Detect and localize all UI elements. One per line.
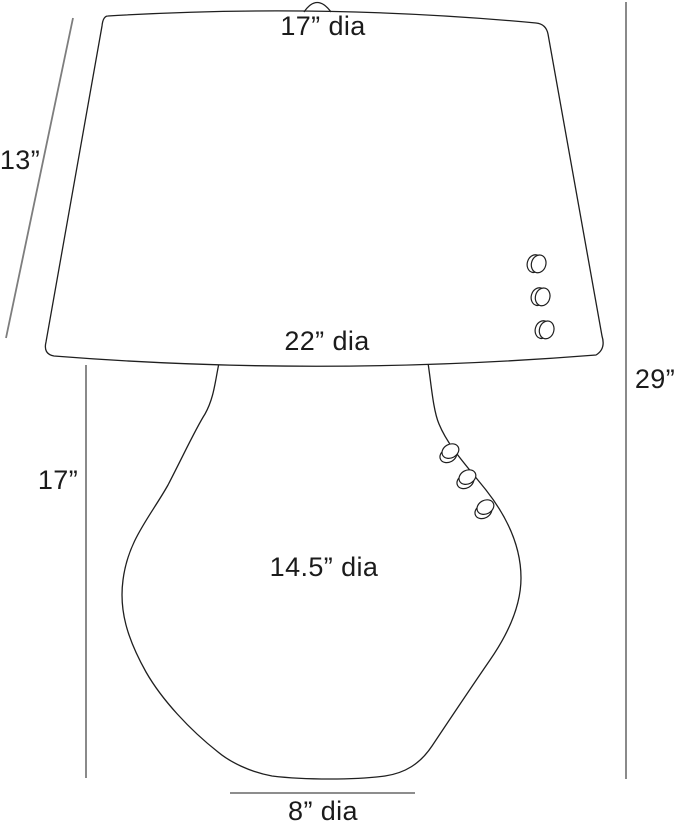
lamp-dimension-diagram: 17” dia 13” 22” dia 29” 17” 14.5” dia 8”…	[0, 0, 676, 829]
body-diameter-label: 14.5” dia	[270, 554, 379, 581]
lamp-line-art	[0, 0, 676, 829]
lampshade-outline	[45, 11, 603, 366]
shade-bottom-diameter-label: 22” dia	[284, 328, 369, 355]
base-diameter-label: 8” dia	[288, 798, 358, 825]
shade-top-diameter-label: 17” dia	[280, 13, 365, 40]
shade-slant-height-label: 13”	[0, 147, 40, 174]
overall-height-label: 29”	[635, 366, 675, 393]
body-height-label: 17”	[38, 467, 78, 494]
